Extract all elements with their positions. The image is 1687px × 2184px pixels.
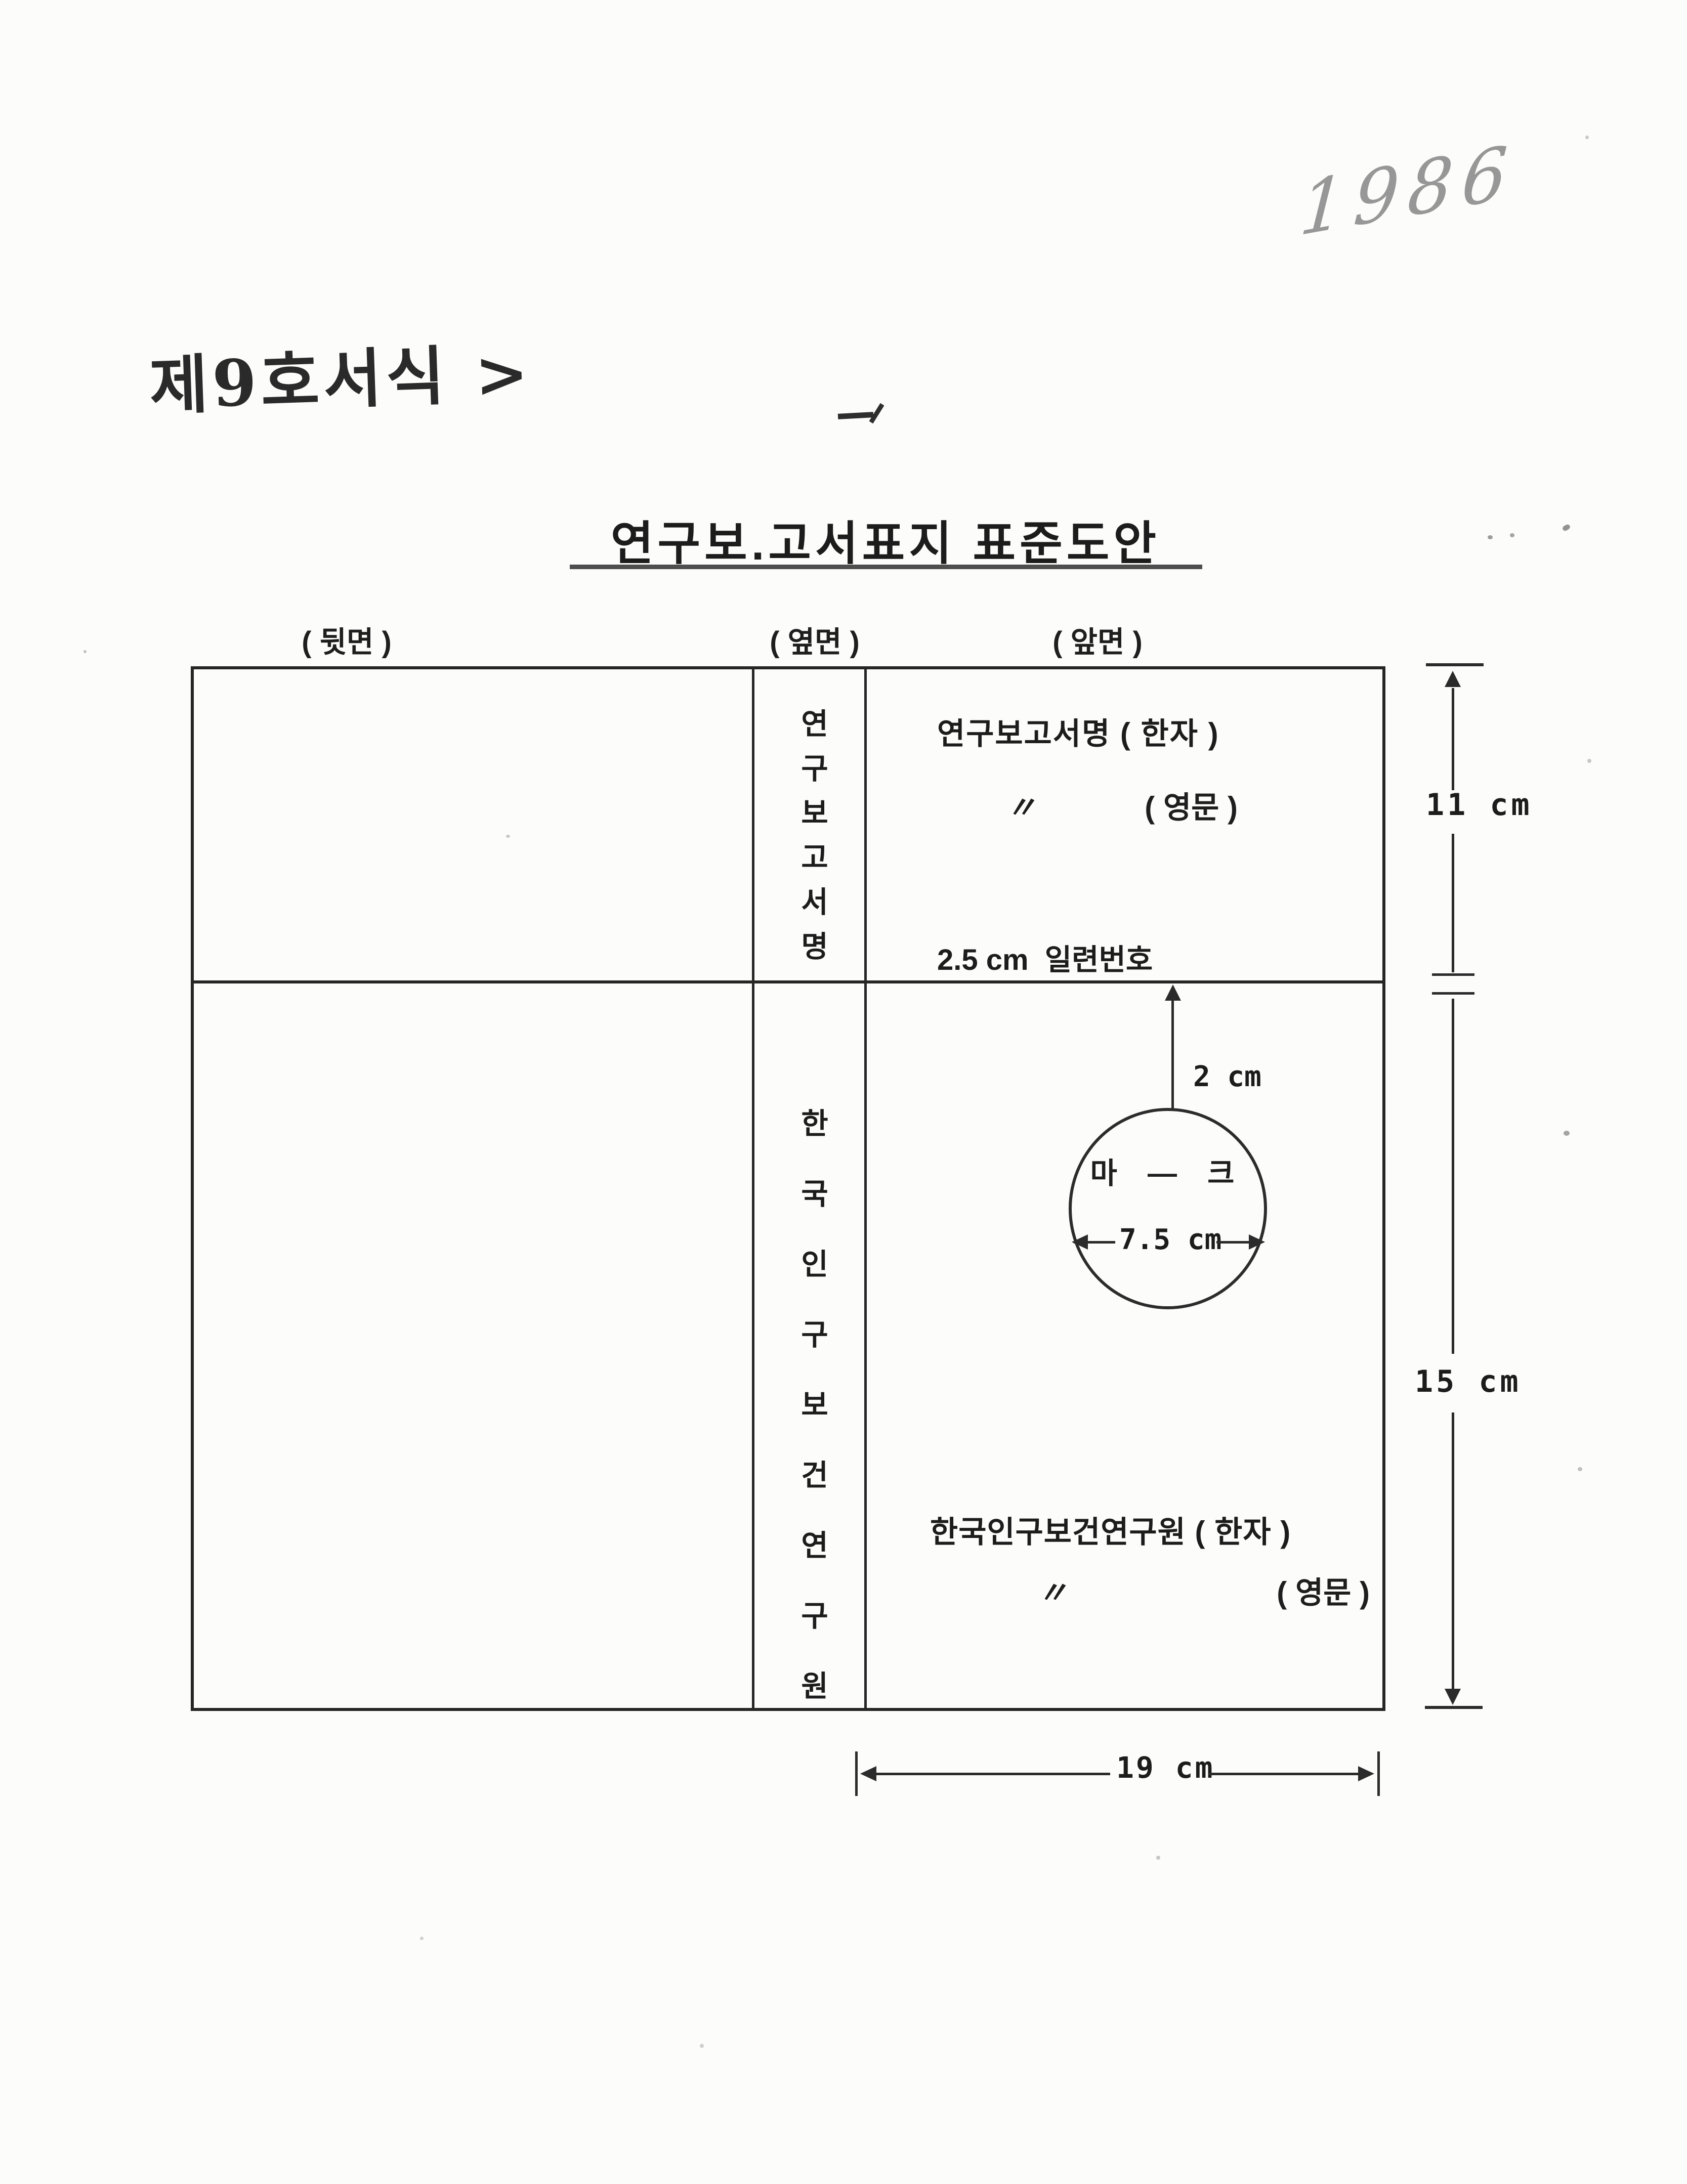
scan-speck bbox=[1488, 535, 1493, 539]
spine-left-border bbox=[752, 666, 754, 1711]
dim-break-tick bbox=[1432, 973, 1474, 976]
dim-line bbox=[1452, 999, 1454, 1354]
page-title: 연구보.고서표지 표준도안 bbox=[572, 506, 1199, 573]
diameter-line-left bbox=[1074, 1241, 1115, 1244]
ditto-mark: 〃 bbox=[1037, 1568, 1068, 1612]
handwritten-form-number: 제9호서식 > bbox=[148, 321, 566, 427]
arrow-up-icon bbox=[1165, 984, 1181, 1001]
lower-height-label: 15 cm bbox=[1415, 1364, 1522, 1399]
scanned-document-page: 1986 제9호서식 > 연구보.고서표지 표준도안 ( 뒷면 ) ( 옆면 )… bbox=[0, 0, 1687, 2184]
scan-speck bbox=[1578, 1467, 1582, 1471]
spine-institute-name: 한국인구보건연구원 bbox=[790, 1108, 833, 1741]
front-institute-hanja: 한국인구보건연구원 ( 한자 ) bbox=[930, 1508, 1291, 1552]
label-back-panel: ( 뒷면 ) bbox=[281, 618, 412, 661]
arrow-up-icon bbox=[1445, 671, 1461, 687]
upper-height-label: 11 cm bbox=[1426, 787, 1533, 823]
serial-number-note: 2.5 cm 일련번호 bbox=[937, 936, 1153, 978]
cover-width-label: 19 cm bbox=[1116, 1750, 1215, 1785]
serial-pointer-line bbox=[1171, 1000, 1174, 1109]
scan-speck bbox=[1564, 1131, 1570, 1136]
scan-speck bbox=[1156, 1856, 1160, 1860]
horizontal-divider bbox=[191, 980, 1385, 983]
arrow-right-icon bbox=[1358, 1766, 1374, 1781]
dim-break-tick bbox=[1432, 992, 1474, 995]
logo-offset-label: 2 cm bbox=[1193, 1060, 1261, 1093]
scan-speck bbox=[420, 1937, 424, 1940]
scan-speck bbox=[83, 650, 87, 653]
spine-report-title: 연구보고서명 bbox=[790, 708, 833, 975]
handwritten-year: 1986 bbox=[1297, 130, 1512, 253]
dim-tick bbox=[1377, 1751, 1380, 1796]
dim-line bbox=[1452, 1412, 1454, 1692]
dim-tick bbox=[1425, 1706, 1483, 1709]
arrow-right-icon bbox=[1249, 1234, 1265, 1250]
label-spine-panel: ( 옆면 ) bbox=[749, 618, 880, 661]
label-front-panel: ( 앞면 ) bbox=[1032, 618, 1163, 661]
front-institute-english-row: 〃 ( 영문 ) bbox=[1037, 1568, 1370, 1612]
scan-speck bbox=[1510, 533, 1514, 537]
dim-line bbox=[874, 1773, 1110, 1775]
logo-circle bbox=[1069, 1108, 1267, 1309]
spine-right-border bbox=[864, 666, 867, 1711]
logo-diameter-label: 7.5 cm bbox=[1119, 1223, 1221, 1256]
scan-speck bbox=[1562, 524, 1571, 532]
dim-line bbox=[1452, 688, 1454, 790]
front-report-title-english: ( 영문 ) bbox=[1145, 783, 1238, 827]
dim-tick bbox=[1426, 663, 1484, 666]
dim-tick bbox=[855, 1751, 858, 1796]
scan-speck bbox=[1585, 136, 1589, 139]
dim-line bbox=[1452, 834, 1454, 972]
pen-mark-dash bbox=[838, 412, 873, 419]
scan-speck bbox=[700, 2044, 704, 2048]
front-institute-english: ( 영문 ) bbox=[1277, 1568, 1370, 1612]
front-report-title-english-row: 〃 ( 영문 ) bbox=[1006, 783, 1238, 827]
dim-line bbox=[1208, 1773, 1359, 1775]
title-underline bbox=[570, 565, 1202, 569]
diameter-line-right bbox=[1216, 1241, 1250, 1244]
arrow-down-icon bbox=[1445, 1689, 1461, 1705]
logo-mark-label: 마 ― 크 bbox=[1069, 1149, 1267, 1192]
ditto-mark: 〃 bbox=[1006, 783, 1036, 827]
front-report-title-hanja: 연구보고서명 ( 한자 ) bbox=[937, 709, 1219, 753]
scan-speck bbox=[1587, 759, 1591, 763]
